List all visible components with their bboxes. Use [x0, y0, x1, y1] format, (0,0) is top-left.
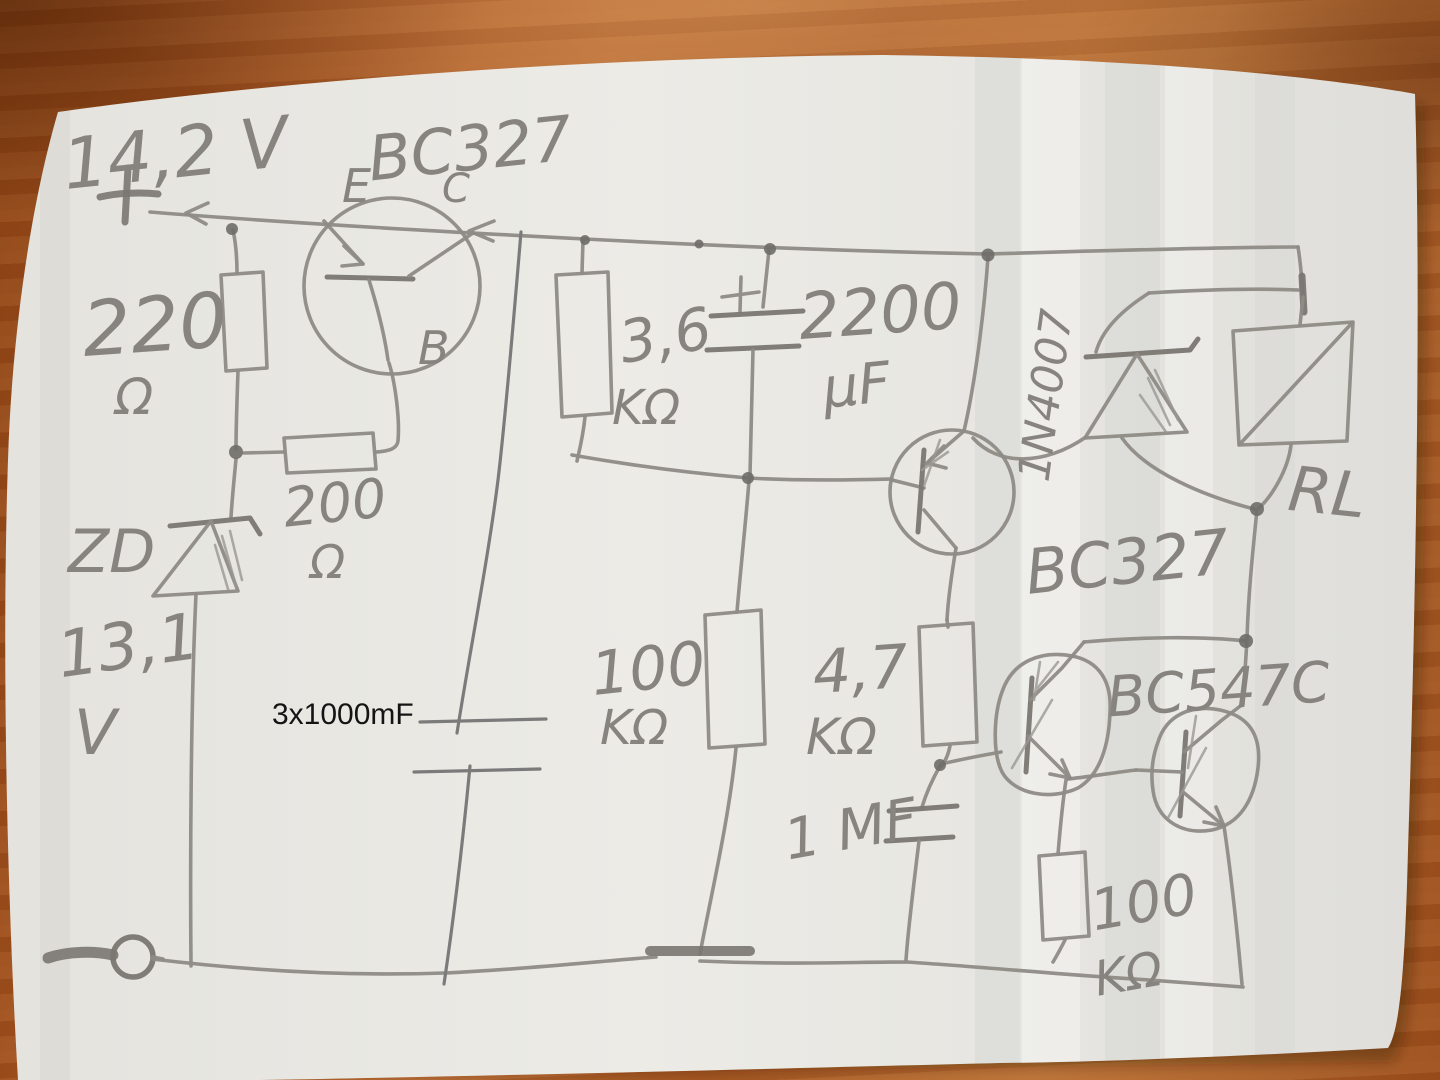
- r5-value-label: 4,7: [810, 632, 910, 708]
- r2-unit-label: Ω: [308, 535, 345, 589]
- zener-unit-label: V: [74, 696, 121, 769]
- r4-unit-label: KΩ: [600, 700, 668, 756]
- t1-collector-label: C: [442, 166, 470, 212]
- relay-name-label: RL: [1285, 452, 1370, 533]
- r4-value-label: 100: [588, 628, 709, 710]
- photo-of-circuit-sketch: { "photo": { "description": "hand-drawn …: [0, 0, 1440, 1080]
- c1-value-label: 2200: [797, 270, 965, 355]
- minus-terminal-symbol: [48, 952, 113, 958]
- r2-value-label: 200: [280, 466, 389, 539]
- zener-name-label: ZD: [66, 517, 155, 587]
- r1-unit-label: Ω: [113, 368, 153, 426]
- r5-unit-label: KΩ: [806, 708, 877, 766]
- r1-value-label: 220: [79, 275, 230, 374]
- r6-unit-label: KΩ: [1090, 941, 1167, 1008]
- circuit-sketch: 14,2 V BC327 E C B 220 Ω 200 Ω ZD 13,1 V…: [0, 0, 1440, 1080]
- digital-annotation-text: 3x1000mF: [272, 698, 414, 731]
- t1-emitter-label: E: [342, 159, 371, 213]
- c1-unit-label: µF: [818, 350, 894, 422]
- r3-unit-label: KΩ: [612, 380, 680, 436]
- t1-base-label: B: [418, 321, 450, 375]
